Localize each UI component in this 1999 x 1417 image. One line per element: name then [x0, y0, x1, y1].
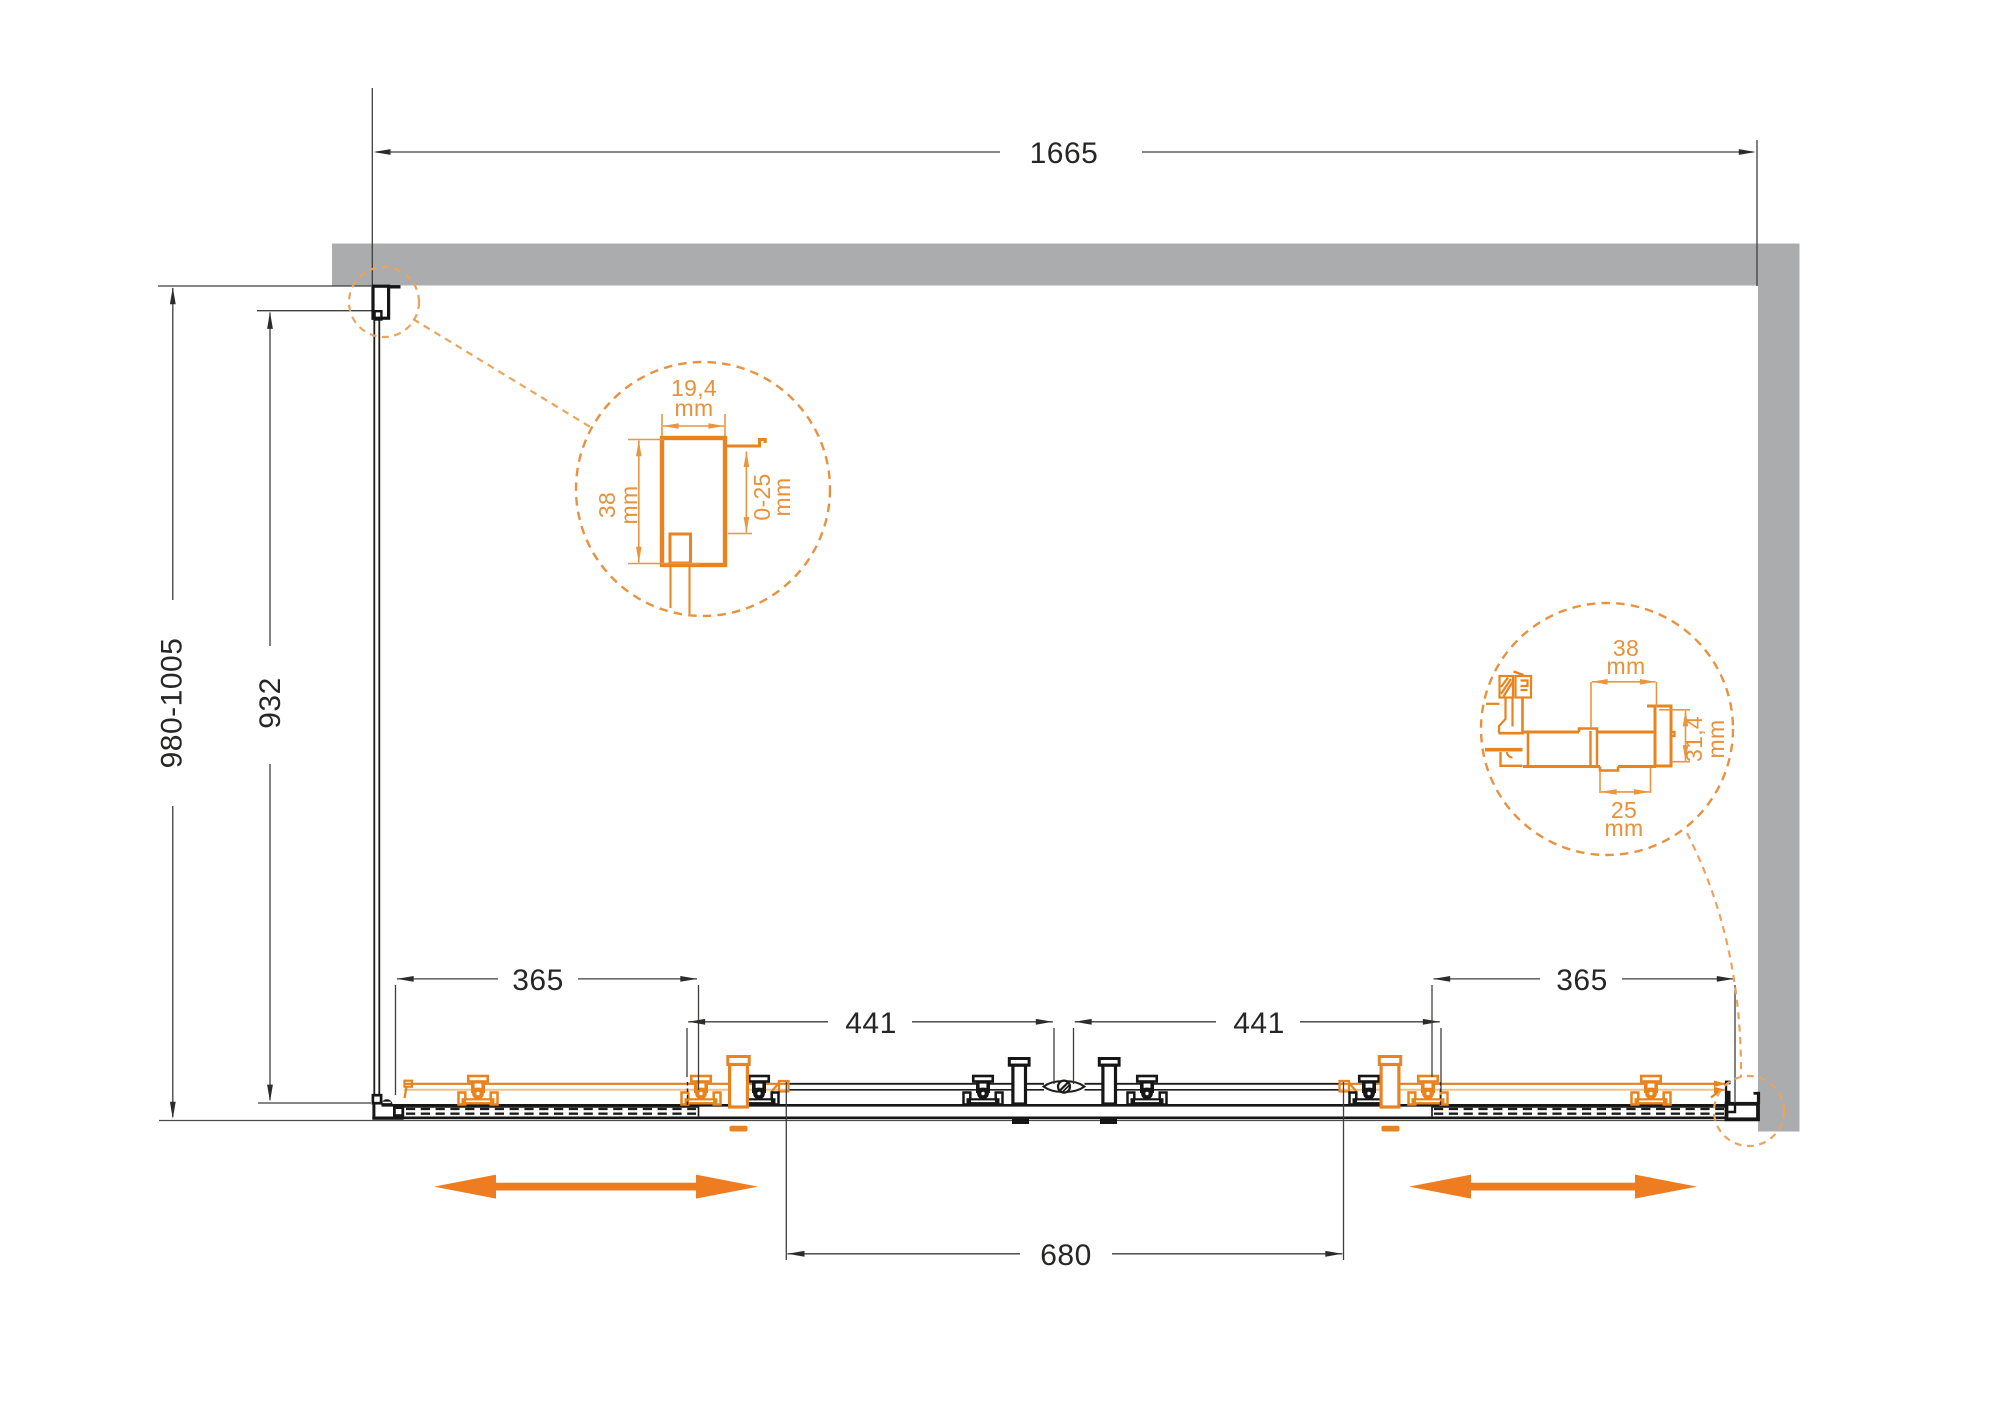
svg-text:mm: mm: [1703, 720, 1729, 759]
svg-text:mm: mm: [1605, 815, 1644, 841]
svg-text:980-1005: 980-1005: [156, 638, 189, 769]
svg-text:365: 365: [512, 964, 564, 997]
svg-text:mm: mm: [675, 395, 714, 421]
svg-text:365: 365: [1556, 964, 1608, 997]
svg-text:680: 680: [1040, 1239, 1092, 1272]
svg-text:1665: 1665: [1030, 137, 1099, 170]
svg-text:441: 441: [1233, 1007, 1285, 1040]
svg-text:mm: mm: [769, 478, 795, 517]
svg-text:mm: mm: [1607, 653, 1646, 679]
svg-text:441: 441: [845, 1007, 897, 1040]
svg-text:mm: mm: [616, 486, 642, 525]
svg-text:932: 932: [254, 677, 287, 729]
